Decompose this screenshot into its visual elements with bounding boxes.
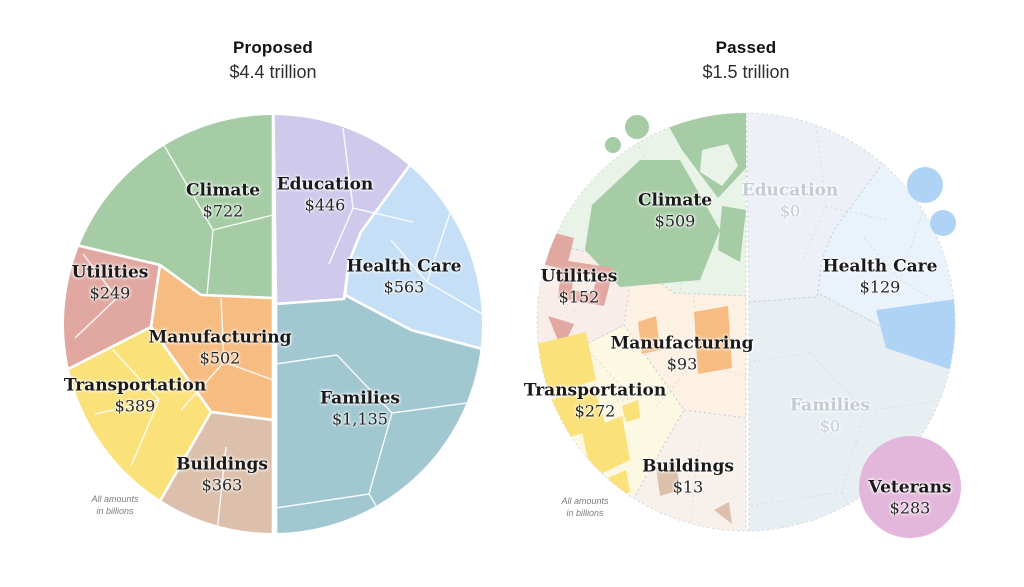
proposed-chart: Climate $722 Education $446 Health Care … bbox=[61, 112, 485, 536]
families-region bbox=[276, 295, 523, 574]
passed-voronoi-svg bbox=[534, 110, 958, 534]
budget-comparison-graphic: Proposed $4.4 trillion Climate $722 bbox=[0, 0, 1024, 587]
proposed-footnote: All amounts in billions bbox=[91, 493, 138, 517]
proposed-title-block: Proposed $4.4 trillion bbox=[229, 38, 316, 83]
veterans-bubble bbox=[859, 436, 961, 538]
passed-subtitle: $1.5 trillion bbox=[702, 62, 789, 83]
families-region-faded bbox=[749, 293, 996, 572]
passed-title-block: Passed $1.5 trillion bbox=[702, 38, 789, 83]
proposed-voronoi-svg bbox=[61, 112, 485, 536]
passed-title: Passed bbox=[702, 38, 789, 58]
proposed-title: Proposed bbox=[229, 38, 316, 58]
passed-footnote: All amounts in billions bbox=[561, 495, 608, 519]
passed-chart: Climate $509 Education $0 Health Care $1… bbox=[534, 110, 958, 534]
proposed-subtitle: $4.4 trillion bbox=[229, 62, 316, 83]
